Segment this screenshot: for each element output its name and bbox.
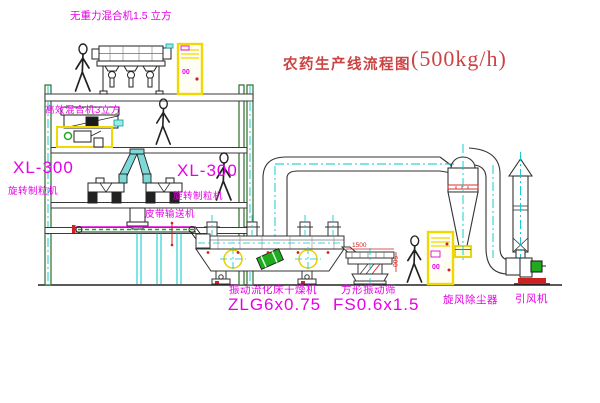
dimension-screen-height: 500 bbox=[391, 256, 398, 267]
label-screen-name: 方形振动筛 bbox=[341, 285, 396, 296]
worker-figure bbox=[156, 99, 170, 144]
control-cabinet-2 bbox=[428, 232, 453, 284]
vibrating-screen bbox=[346, 249, 396, 284]
label-dryer-name: 振动流化床干燥机 bbox=[229, 285, 317, 296]
label-belt-conveyor: 皮带输送机 bbox=[145, 210, 195, 220]
cyclone-separator bbox=[448, 148, 500, 257]
label-dryer-model: ZLG6x0.75 bbox=[228, 296, 321, 313]
y-chute bbox=[119, 149, 151, 183]
label-screen-model: FS0.6x1.5 bbox=[333, 296, 420, 313]
label-cyclone: 旋风除尘器 bbox=[443, 295, 498, 306]
title-capacity: (500kg/h) bbox=[411, 46, 507, 72]
dimension-screen-length: 1500 bbox=[352, 242, 366, 249]
dryer-legs bbox=[212, 271, 316, 284]
induced-draft-fan bbox=[506, 258, 550, 284]
gravity-free-mixer bbox=[92, 44, 173, 94]
label-granulator-right-model: XL-300 bbox=[177, 162, 238, 179]
worker-figure bbox=[407, 236, 421, 282]
title-chinese: 农药生产线流程图 bbox=[283, 46, 411, 74]
label-granulator-right-name: 旋转制粒机 bbox=[173, 192, 223, 202]
label-high-efficiency-mixer: 高效混合机3立方 bbox=[45, 106, 121, 116]
cabinet2-marking: 00 bbox=[432, 264, 440, 271]
flow-diagram-canvas: 农药生产线流程图 (500kg/h) 无重力混合机1.5 立方 高效混合机3立方… bbox=[0, 0, 600, 403]
label-gravity-free-mixer: 无重力混合机1.5 立方 bbox=[70, 11, 172, 22]
label-granulator-left-name: 旋转制粒机 bbox=[8, 187, 58, 197]
cabinet1-marking: 00 bbox=[182, 69, 190, 76]
label-fan: 引风机 bbox=[515, 294, 548, 305]
worker-figure bbox=[76, 44, 91, 91]
exhaust-duct bbox=[263, 157, 452, 237]
diagram-title: 农药生产线流程图 (500kg/h) bbox=[283, 46, 507, 74]
label-granulator-left-model: XL-300 bbox=[13, 159, 74, 176]
conveyor-support-columns bbox=[137, 234, 181, 285]
